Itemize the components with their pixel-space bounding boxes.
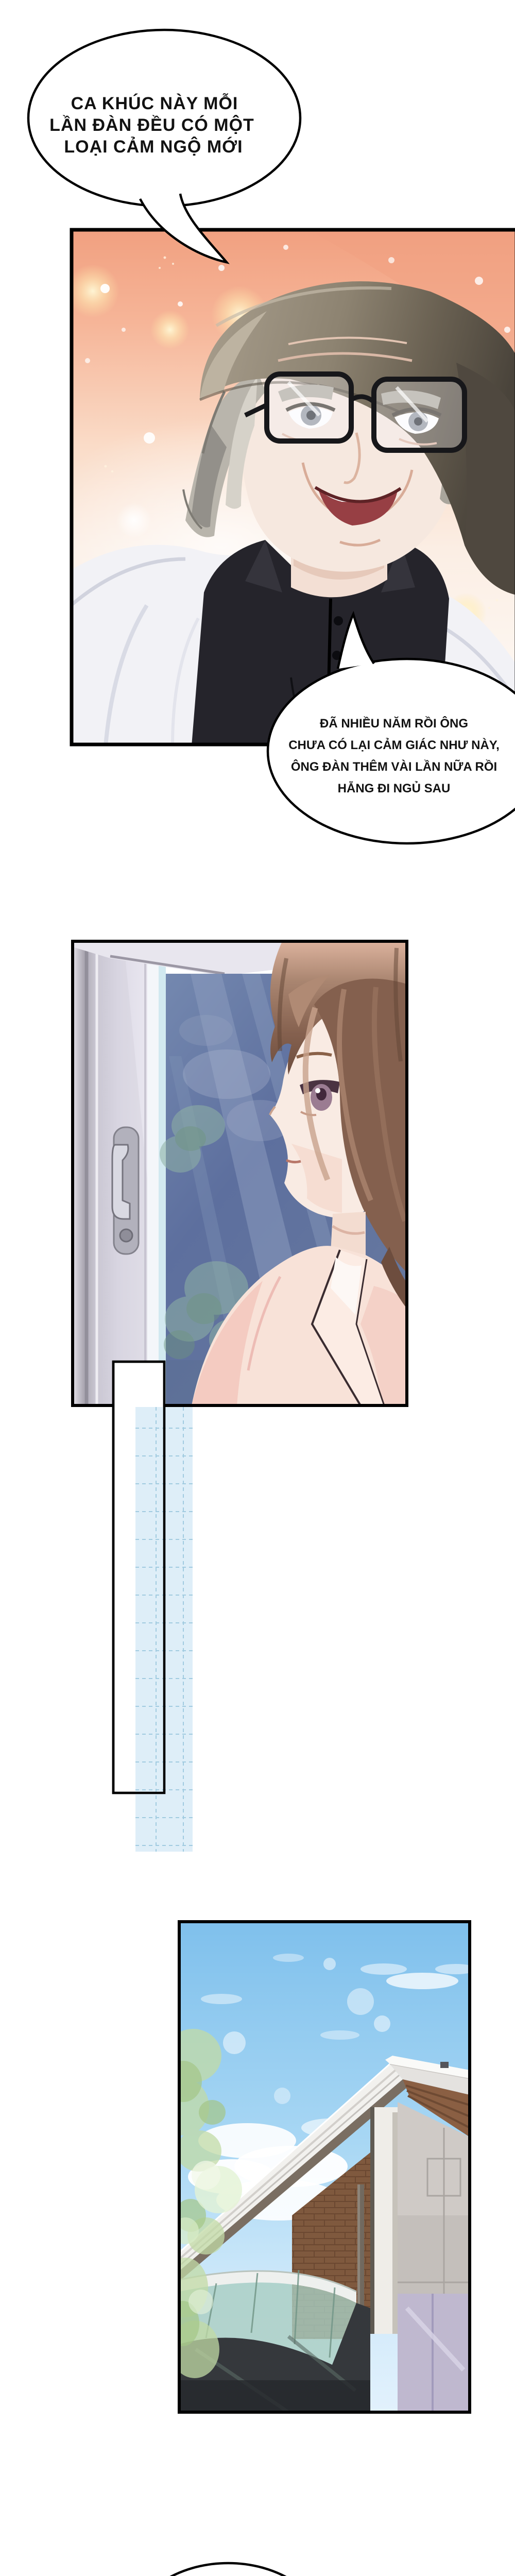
svg-text:ÔNG ĐÀN THÊM VÀI LẦN NỮA RỒI: ÔNG ĐÀN THÊM VÀI LẦN NỮA RỒI bbox=[291, 759, 497, 774]
svg-text:HẴNG ĐI NGỦ SAU: HẴNG ĐI NGỦ SAU bbox=[338, 781, 451, 795]
svg-text:CHƯA CÓ LẠI CẢM GIÁC NHƯ NÀY,: CHƯA CÓ LẠI CẢM GIÁC NHƯ NÀY, bbox=[288, 737, 500, 752]
svg-text:ĐÃ NHIỀU NĂM RỒI ÔNG: ĐÃ NHIỀU NĂM RỒI ÔNG bbox=[320, 716, 468, 731]
svg-text:LOẠI CẢM NGỘ MỚI: LOẠI CẢM NGỘ MỚI bbox=[64, 137, 243, 157]
svg-text:LẦN ĐÀN ĐỀU CÓ MỘT: LẦN ĐÀN ĐỀU CÓ MỘT bbox=[49, 115, 254, 135]
svg-text:CA KHÚC NÀY MỖI: CA KHÚC NÀY MỖI bbox=[71, 94, 238, 113]
